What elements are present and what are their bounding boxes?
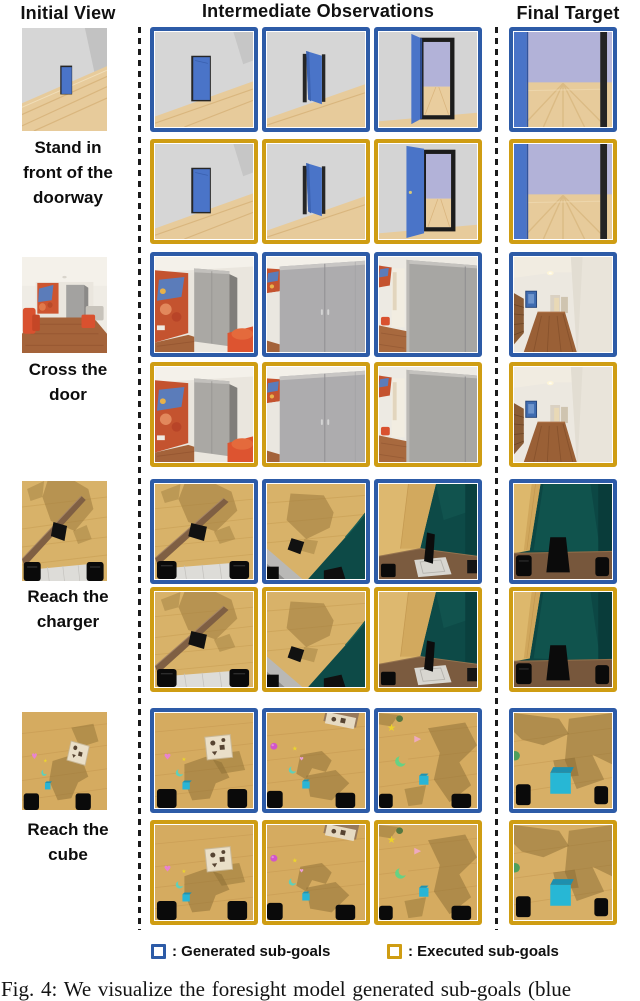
initial-view-image-row4: ♥ ★: [22, 712, 107, 810]
executed-subgoal-image: [262, 139, 370, 244]
svg-text:♥: ♥: [299, 869, 303, 875]
executed-subgoal-image: [374, 362, 482, 467]
final-target-generated-image: [509, 27, 617, 132]
svg-text:★: ★: [292, 746, 298, 753]
figure-caption: Fig. 4: We visualize the foresight model…: [1, 978, 640, 1001]
legend-generated: : Generated sub-goals: [151, 942, 330, 960]
divider-dashed-left: [138, 27, 141, 930]
svg-text:♥: ♥: [299, 757, 303, 763]
divider-dashed-right: [495, 27, 498, 930]
executed-subgoal-image: [262, 587, 370, 692]
executed-subgoal-image: [374, 587, 482, 692]
executed-subgoal-image: [150, 139, 258, 244]
column-header-final-target: Final Target: [500, 3, 636, 24]
svg-text:★: ★: [181, 869, 186, 875]
executed-subgoal-image: ★ ♥: [262, 820, 370, 925]
task-label-row4: Reach the cube: [0, 817, 136, 867]
final-target-executed-image: [509, 139, 617, 244]
generated-subgoal-image: [150, 27, 258, 132]
legend-executed: : Executed sub-goals: [387, 942, 559, 960]
task-label-row2: Cross the door: [0, 357, 136, 407]
generated-subgoal-image: [150, 252, 258, 357]
executed-subgoal-image: [262, 362, 370, 467]
executed-subgoal-image: [150, 587, 258, 692]
initial-view-image-row3: [22, 481, 107, 581]
task-label-row1: Stand in front of the doorway: [0, 135, 136, 210]
executed-subgoal-image: [150, 362, 258, 467]
legend-executed-label: : Executed sub-goals: [408, 943, 559, 960]
svg-text:♥: ♥: [31, 752, 37, 762]
generated-subgoal-image: [150, 479, 258, 584]
final-target-generated-image: [509, 252, 617, 357]
svg-text:♥: ♥: [164, 864, 171, 874]
initial-view-image-row2: [22, 257, 107, 353]
final-target-executed-image: [509, 820, 617, 925]
svg-text:★: ★: [292, 858, 298, 865]
task-label-row3: Reach the charger: [0, 584, 136, 634]
generated-subgoal-image: ★: [374, 708, 482, 813]
final-target-generated-image: [509, 708, 617, 813]
svg-text:★: ★: [43, 758, 48, 764]
final-target-executed-image: [509, 362, 617, 467]
generated-subgoal-image: [262, 252, 370, 357]
svg-text:♥: ♥: [164, 752, 171, 762]
generated-subgoal-image: [374, 252, 482, 357]
svg-text:★: ★: [387, 723, 396, 734]
generated-subgoal-image: [262, 27, 370, 132]
column-header-intermediate-observations: Intermediate Observations: [148, 1, 488, 22]
executed-subgoal-swatch-icon: [387, 944, 402, 959]
executed-subgoal-image: ★: [374, 820, 482, 925]
legend-generated-label: : Generated sub-goals: [172, 943, 330, 960]
final-target-generated-image: [509, 479, 617, 584]
generated-subgoal-image: ★ ♥: [262, 708, 370, 813]
svg-text:★: ★: [181, 757, 186, 763]
generated-subgoal-image: ♥ ★: [150, 708, 258, 813]
generated-subgoal-image: [374, 479, 482, 584]
generated-subgoal-image: [262, 479, 370, 584]
column-header-initial-view: Initial View: [0, 3, 136, 24]
initial-view-image-row1: [22, 28, 107, 131]
generated-subgoal-image: [374, 27, 482, 132]
svg-text:★: ★: [387, 835, 396, 846]
final-target-executed-image: [509, 587, 617, 692]
generated-subgoal-swatch-icon: [151, 944, 166, 959]
executed-subgoal-image: [374, 139, 482, 244]
executed-subgoal-image: ♥ ★: [150, 820, 258, 925]
